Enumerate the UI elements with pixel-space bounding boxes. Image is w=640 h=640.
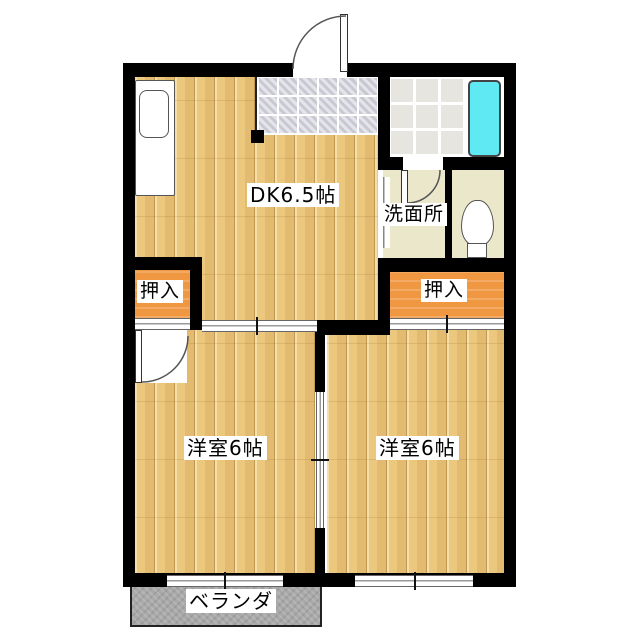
wall-closet-left-right	[190, 270, 202, 330]
bath-door-opening	[403, 157, 443, 170]
sliding-door-tick	[256, 317, 258, 335]
bath-door-leaf	[401, 170, 408, 204]
entrance-door-leaf	[340, 14, 348, 72]
wall-bedroom-divider-bottom	[315, 528, 325, 575]
bedroom-left-door-swing	[135, 330, 187, 383]
toilet-bowl	[461, 200, 494, 246]
veranda-label: ベランダ	[186, 589, 276, 613]
bathtub	[468, 80, 501, 157]
bedroom-right-label: 洋室6帖	[376, 436, 459, 460]
closet-right-label: 押入	[421, 279, 467, 302]
closet-left-sliding-door	[135, 318, 190, 330]
bedroom-left-door-leaf	[135, 330, 142, 383]
wall-dk-bedroom-right	[317, 320, 390, 335]
sliding-door-tick	[311, 459, 329, 461]
wall-bedroom-divider-top	[315, 330, 325, 392]
dk-bedroom-left-sliding-door	[202, 320, 317, 332]
genkan-corner-marker	[251, 130, 264, 143]
bathroom-floor	[388, 77, 463, 157]
entrance-opening	[293, 63, 347, 77]
wall-sanitary-bottom	[378, 258, 516, 272]
toilet-tank	[467, 243, 487, 258]
entrance-door-arc	[293, 16, 346, 69]
wall-right	[504, 63, 516, 587]
window-tick	[224, 572, 226, 590]
closet-left-label: 押入	[137, 280, 183, 303]
window-tick	[414, 572, 416, 590]
wall-left	[123, 63, 135, 587]
floor-plan: DK6.5帖 洗面所 押入 押入 洋室6帖 洋室6帖 ベランダ	[0, 0, 640, 640]
kitchen-sink	[139, 90, 169, 138]
wall-bathroom-bottom	[378, 157, 516, 170]
genkan-entry-floor	[257, 77, 378, 135]
bedroom-left-label: 洋室6帖	[184, 436, 267, 460]
sliding-door-tick	[446, 315, 448, 333]
wall-closet-left-top	[123, 257, 202, 270]
genkan-edge-line	[255, 77, 257, 135]
dk-room-label: DK6.5帖	[247, 183, 339, 207]
washroom-label: 洗面所	[381, 203, 447, 226]
